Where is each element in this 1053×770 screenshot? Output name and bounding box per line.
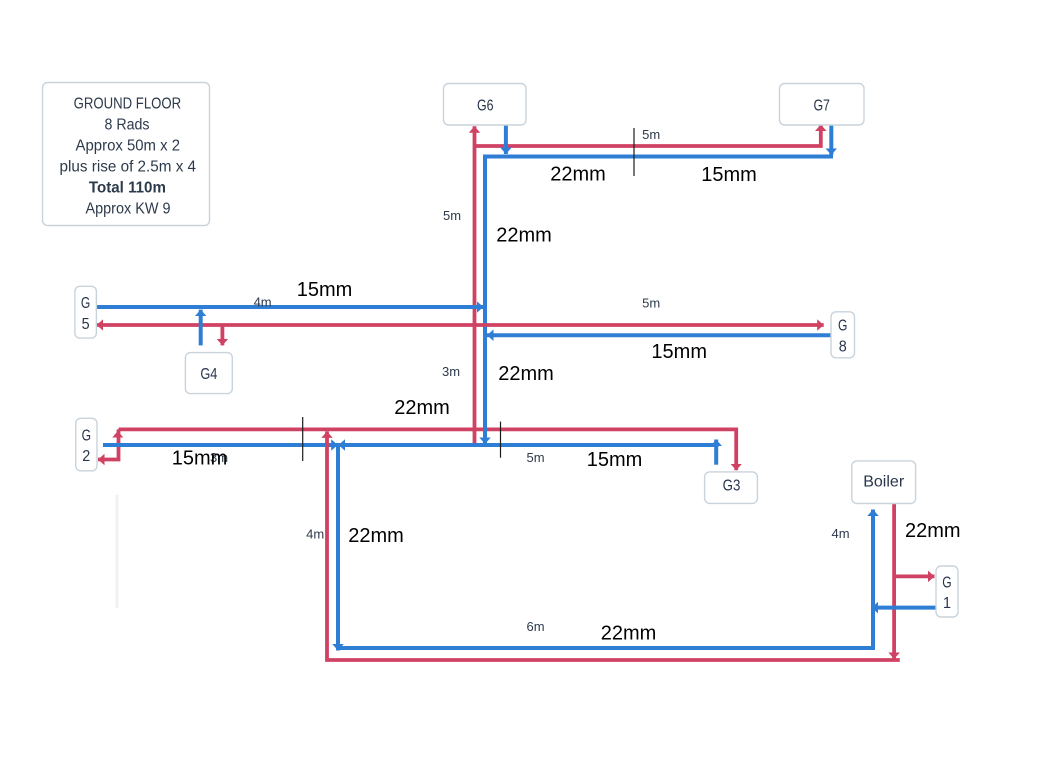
svg-text:Total 110m: Total 110m xyxy=(89,180,166,197)
svg-text:22mm: 22mm xyxy=(905,520,961,542)
svg-text:G7: G7 xyxy=(813,98,830,115)
svg-text:5: 5 xyxy=(82,316,90,333)
svg-text:22mm: 22mm xyxy=(394,397,450,419)
svg-text:5m: 5m xyxy=(642,127,660,142)
svg-text:15mm: 15mm xyxy=(587,449,643,471)
svg-text:15mm: 15mm xyxy=(172,448,228,470)
svg-text:G: G xyxy=(942,574,951,591)
svg-text:4m: 4m xyxy=(306,527,324,542)
svg-text:5m: 5m xyxy=(526,450,544,465)
svg-text:8 Rads: 8 Rads xyxy=(105,117,150,134)
svg-text:15mm: 15mm xyxy=(701,164,757,186)
svg-text:22mm: 22mm xyxy=(496,225,552,247)
svg-text:6m: 6m xyxy=(526,619,544,634)
svg-text:G: G xyxy=(838,318,847,335)
svg-text:3m: 3m xyxy=(442,364,460,379)
svg-text:4m: 4m xyxy=(831,526,849,541)
svg-text:Boiler: Boiler xyxy=(863,474,905,491)
svg-text:22mm: 22mm xyxy=(550,164,606,186)
svg-text:5m: 5m xyxy=(642,296,660,311)
svg-text:8: 8 xyxy=(839,338,847,355)
svg-text:22mm: 22mm xyxy=(601,623,657,645)
svg-text:1: 1 xyxy=(943,595,951,612)
svg-text:Approx KW 9: Approx KW 9 xyxy=(86,201,171,218)
svg-text:plus rise of 2.5m x 4: plus rise of 2.5m x 4 xyxy=(60,159,197,176)
svg-text:G3: G3 xyxy=(723,478,741,495)
svg-text:Approx 50m x 2: Approx 50m x 2 xyxy=(76,138,181,155)
svg-text:5m: 5m xyxy=(443,208,461,223)
svg-text:4m: 4m xyxy=(254,295,272,310)
svg-text:22mm: 22mm xyxy=(498,363,554,385)
svg-text:G: G xyxy=(81,295,90,312)
svg-text:GROUND FLOOR: GROUND FLOOR xyxy=(74,96,182,113)
svg-text:15mm: 15mm xyxy=(651,341,707,363)
svg-text:2: 2 xyxy=(82,448,90,465)
svg-text:22mm: 22mm xyxy=(348,525,404,547)
svg-text:G6: G6 xyxy=(477,98,494,115)
svg-text:G4: G4 xyxy=(200,366,217,383)
svg-text:G: G xyxy=(82,428,91,445)
svg-text:15mm: 15mm xyxy=(297,279,353,301)
